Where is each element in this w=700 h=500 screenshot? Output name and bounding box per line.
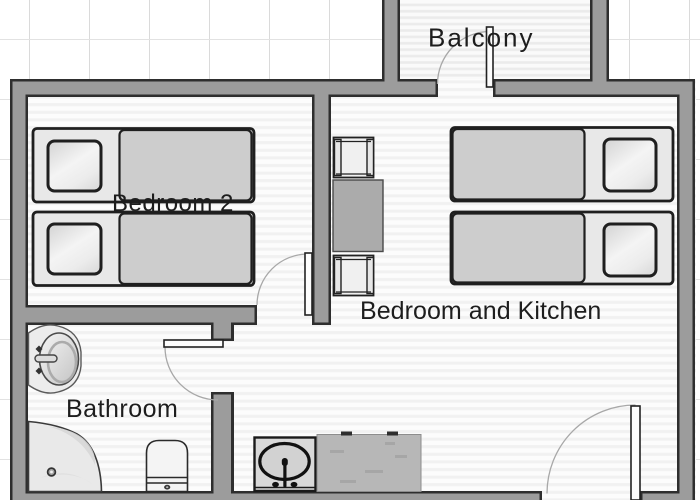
svg-text:Balcony: Balcony xyxy=(428,23,535,53)
svg-text:Bathroom: Bathroom xyxy=(66,395,178,423)
svg-text:Bedroom 2: Bedroom 2 xyxy=(112,190,234,217)
svg-text:Bedroom and Kitchen: Bedroom and Kitchen xyxy=(360,297,601,325)
